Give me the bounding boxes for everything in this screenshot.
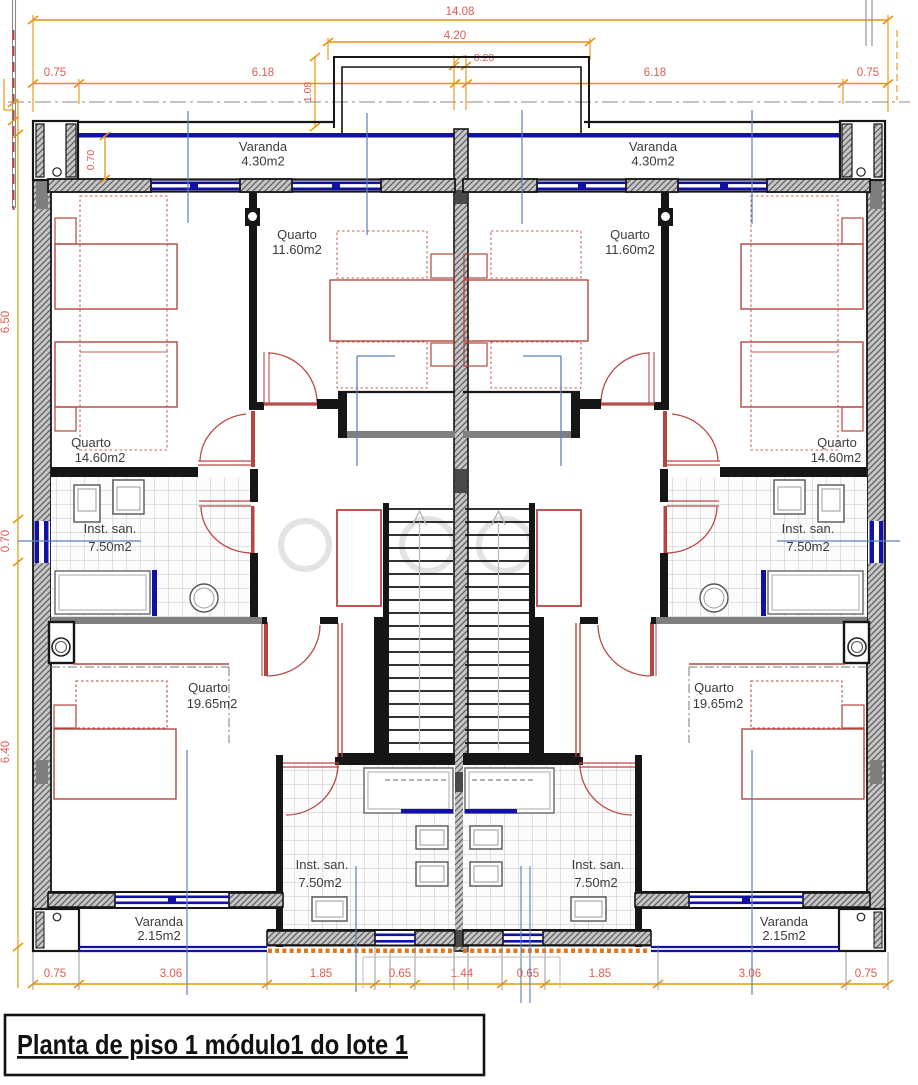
svg-text:6.50: 6.50 bbox=[0, 311, 12, 333]
svg-text:Quarto: Quarto bbox=[277, 227, 317, 242]
svg-text:Varanda: Varanda bbox=[135, 914, 184, 929]
svg-text:0.75: 0.75 bbox=[857, 67, 879, 79]
svg-text:4.20: 4.20 bbox=[444, 30, 466, 42]
svg-text:0.70: 0.70 bbox=[0, 530, 12, 552]
svg-text:2.15m2: 2.15m2 bbox=[762, 928, 805, 943]
svg-text:7.50m2: 7.50m2 bbox=[88, 539, 131, 554]
svg-text:Planta de piso 1 módulo1 do lo: Planta de piso 1 módulo1 do lote 1 bbox=[17, 1029, 408, 1060]
svg-text:14.08: 14.08 bbox=[446, 6, 475, 18]
svg-text:7.50m2: 7.50m2 bbox=[298, 875, 341, 890]
svg-text:14.60m2: 14.60m2 bbox=[75, 450, 126, 465]
svg-text:0.65: 0.65 bbox=[517, 968, 539, 980]
svg-text:1.85: 1.85 bbox=[589, 968, 611, 980]
svg-text:Inst. san.: Inst. san. bbox=[782, 521, 835, 536]
svg-text:0.75: 0.75 bbox=[855, 968, 877, 980]
svg-text:3.06: 3.06 bbox=[160, 968, 182, 980]
svg-text:11.60m2: 11.60m2 bbox=[605, 242, 655, 257]
svg-text:Quarto: Quarto bbox=[610, 227, 650, 242]
svg-text:19.65m2: 19.65m2 bbox=[187, 696, 238, 711]
svg-text:1.08: 1.08 bbox=[302, 82, 314, 103]
svg-text:14.60m2: 14.60m2 bbox=[811, 450, 862, 465]
svg-text:4.30m2: 4.30m2 bbox=[241, 154, 284, 169]
svg-text:6.18: 6.18 bbox=[644, 67, 666, 79]
svg-text:Inst. san.: Inst. san. bbox=[572, 857, 625, 872]
svg-text:Inst. san.: Inst. san. bbox=[296, 857, 349, 872]
svg-text:0.70: 0.70 bbox=[85, 150, 97, 171]
svg-text:7.50m2: 7.50m2 bbox=[574, 875, 617, 890]
svg-text:Varanda: Varanda bbox=[239, 139, 288, 154]
svg-text:Varanda: Varanda bbox=[760, 914, 809, 929]
svg-text:6.18: 6.18 bbox=[252, 67, 274, 79]
svg-text:Quarto: Quarto bbox=[817, 435, 857, 450]
svg-text:Inst. san.: Inst. san. bbox=[84, 521, 137, 536]
svg-text:Varanda: Varanda bbox=[629, 139, 678, 154]
svg-text:3.06: 3.06 bbox=[739, 968, 761, 980]
svg-text:Quarto: Quarto bbox=[694, 680, 734, 695]
svg-text:0.75: 0.75 bbox=[44, 968, 66, 980]
svg-text:2.15m2: 2.15m2 bbox=[137, 928, 180, 943]
svg-text:Quarto: Quarto bbox=[71, 435, 111, 450]
svg-text:1.85: 1.85 bbox=[310, 968, 332, 980]
svg-text:0.75: 0.75 bbox=[44, 67, 66, 79]
svg-text:19.65m2: 19.65m2 bbox=[693, 696, 744, 711]
svg-text:11.60m2: 11.60m2 bbox=[272, 242, 322, 257]
svg-text:4.30m2: 4.30m2 bbox=[631, 154, 674, 169]
svg-text:7.50m2: 7.50m2 bbox=[786, 539, 829, 554]
svg-text:6.40: 6.40 bbox=[0, 741, 12, 763]
svg-text:0.65: 0.65 bbox=[389, 968, 411, 980]
svg-text:Quarto: Quarto bbox=[188, 680, 228, 695]
